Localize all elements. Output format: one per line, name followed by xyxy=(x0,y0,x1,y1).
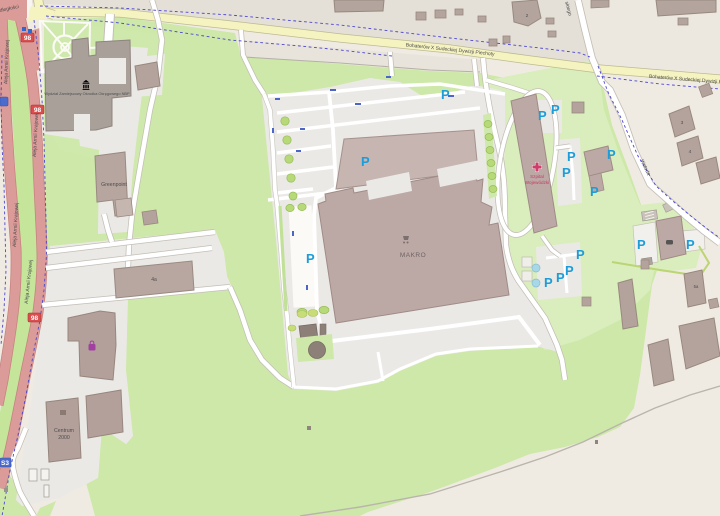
svg-text:Szpital: Szpital xyxy=(530,174,544,179)
svg-text:P: P xyxy=(590,184,599,199)
svg-text:P: P xyxy=(551,102,560,117)
svg-text:98: 98 xyxy=(31,315,39,322)
svg-text:Wojewódzki: Wojewódzki xyxy=(525,180,549,185)
svg-text:5a: 5a xyxy=(694,284,699,289)
svg-text:P: P xyxy=(361,154,370,169)
svg-text:MAKRO: MAKRO xyxy=(400,252,426,259)
svg-text:Centrum: Centrum xyxy=(54,428,74,434)
svg-text:P: P xyxy=(544,275,553,290)
svg-text:P: P xyxy=(562,165,571,180)
svg-text:P: P xyxy=(686,237,695,252)
svg-text:P: P xyxy=(567,149,576,164)
svg-text:Greenpoint: Greenpoint xyxy=(101,182,127,188)
svg-text:3: 3 xyxy=(681,120,684,126)
svg-text:Wydział Zamiejscowy Ośrodka Ok: Wydział Zamiejscowy Ośrodka Okręgowego N… xyxy=(44,91,130,96)
svg-text:4a: 4a xyxy=(151,277,157,283)
svg-text:P: P xyxy=(607,147,616,162)
svg-text:98: 98 xyxy=(24,35,32,42)
svg-text:2000: 2000 xyxy=(58,435,70,441)
svg-text:P: P xyxy=(306,251,315,266)
svg-text:P: P xyxy=(637,237,646,252)
svg-text:P: P xyxy=(538,108,547,123)
svg-text:4: 4 xyxy=(689,149,692,155)
svg-text:2: 2 xyxy=(526,13,529,19)
svg-text:P: P xyxy=(441,87,450,102)
svg-text:P: P xyxy=(565,263,574,278)
svg-text:P: P xyxy=(556,270,565,285)
svg-text:S3: S3 xyxy=(1,460,9,467)
svg-text:P: P xyxy=(576,247,585,262)
